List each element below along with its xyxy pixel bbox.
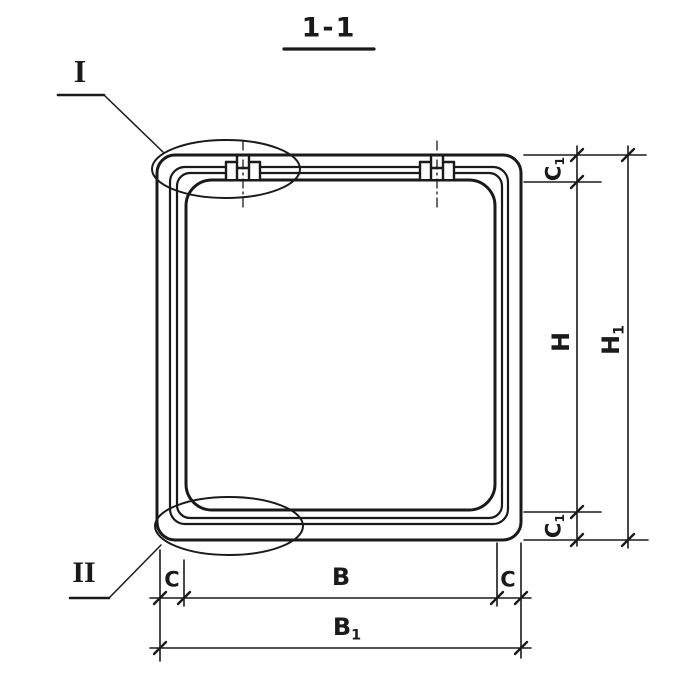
dim-text: C — [500, 567, 515, 591]
dim-label-c-left: C — [164, 569, 179, 592]
dim-text: H — [597, 335, 625, 355]
dim-label-b: B — [332, 565, 350, 593]
detail-callout-top-label: I — [74, 55, 86, 87]
detail-ellipse-bottom — [155, 497, 303, 555]
dim-text: C — [541, 166, 565, 181]
dimension-lines — [150, 146, 648, 661]
dim-subscript: 1 — [552, 157, 567, 166]
dim-text: C — [541, 523, 565, 538]
drawing-sheet: 1-1 I II C B C B1 C1 H H1 C1 — [0, 0, 700, 700]
dim-label-b1: B1 — [333, 615, 361, 643]
dim-label-h: H — [549, 332, 577, 352]
dim-text: C — [164, 567, 179, 591]
dim-text: H — [547, 332, 575, 352]
callout-top-leader — [58, 95, 163, 152]
top-joint-right — [419, 141, 455, 209]
dim-label-c1-top: C1 — [543, 157, 566, 181]
dim-subscript: 1 — [351, 627, 361, 643]
dim-subscript: 1 — [552, 514, 567, 523]
dim-label-c-right: C — [500, 569, 515, 592]
dim-text: B — [332, 563, 350, 591]
dim-subscript: 1 — [611, 325, 627, 335]
dim-label-h1: H1 — [599, 325, 627, 355]
detail-callout-bottom-label: II — [72, 558, 95, 588]
dimension-ticks — [154, 149, 634, 654]
section-title: 1-1 — [302, 15, 357, 42]
section-drawing — [0, 0, 700, 700]
dim-label-c1-bottom: C1 — [543, 514, 566, 538]
dim-text: B — [333, 613, 351, 641]
section-contours — [157, 155, 521, 540]
